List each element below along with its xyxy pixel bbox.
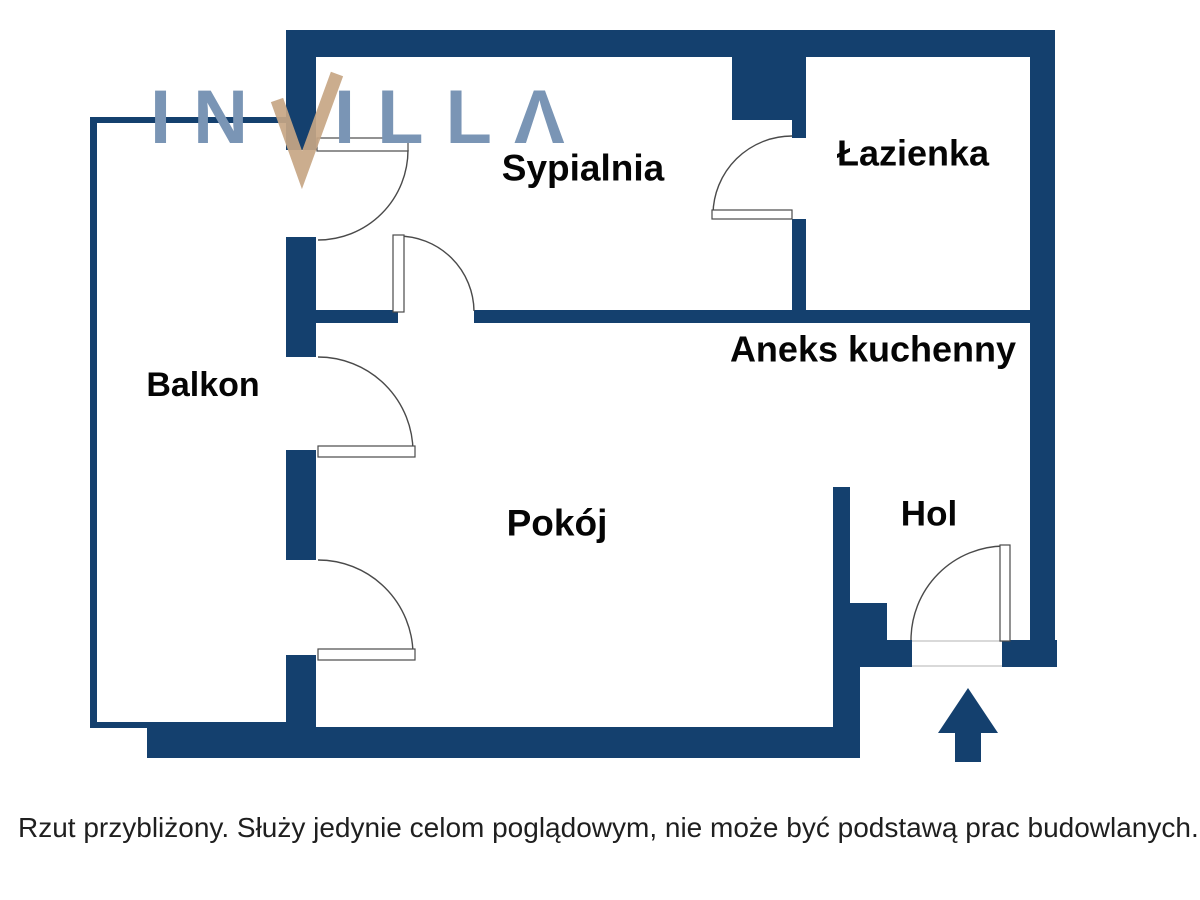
room-label-balkon: Balkon <box>146 366 259 404</box>
room-label-sypialnia: Sypialnia <box>502 148 665 189</box>
floorplan-page: SypialniaŁazienkaAneks kuchennyBalkonPok… <box>0 0 1200 900</box>
floorplan-drawing: SypialniaŁazienkaAneks kuchennyBalkonPok… <box>0 0 1200 900</box>
pokoj-balcony-door-2-leaf <box>318 649 415 660</box>
bath-wall-upper <box>792 120 806 138</box>
left-wall-upper <box>286 30 316 150</box>
divider-wall-left <box>316 310 398 323</box>
entrance-door-arc <box>911 546 1004 640</box>
entrance-arrow-icon <box>938 688 998 762</box>
pokoj-balcony-door-1-leaf <box>318 446 415 457</box>
left-wall-mid-1 <box>286 237 316 357</box>
sypialnia-interior-door-leaf <box>393 235 404 312</box>
room-label-hol: Hol <box>901 495 957 534</box>
sypialnia-balcony-door-leaf <box>317 138 408 151</box>
room-label-pokoj: Pokój <box>507 503 608 544</box>
left-wall-mid-2 <box>286 450 316 560</box>
entrance-threshold-top <box>912 640 1002 642</box>
bathroom-door-leaf <box>712 210 792 219</box>
balcony-wall-bottom <box>90 722 286 728</box>
hol-step <box>833 603 887 640</box>
room-label-aneks-kuchenny: Aneks kuchenny <box>730 329 1016 370</box>
divider-wall-right <box>474 310 1030 323</box>
entrance-threshold-bottom <box>912 665 1002 667</box>
room-label-lazienka: Łazienka <box>837 133 990 174</box>
bottom-wall <box>147 727 860 758</box>
top-wall <box>286 30 1055 57</box>
sypialnia-interior-door-arc <box>398 236 474 311</box>
bath-entry-pier <box>732 57 806 120</box>
disclaimer-text: Rzut przybliżony. Służy jedynie celom po… <box>18 812 1188 844</box>
sypialnia-balcony-door-arc <box>318 150 408 240</box>
right-wall <box>1030 30 1055 667</box>
pokoj-balcony-door-1-arc <box>318 357 413 452</box>
entrance-door-leaf <box>1000 545 1010 641</box>
hol-partition <box>833 487 850 607</box>
bath-wall-lower <box>792 219 806 322</box>
entry-wall-left <box>860 640 912 667</box>
balcony-wall-top <box>90 117 286 123</box>
balcony-wall-left <box>90 117 97 728</box>
pokoj-balcony-door-2-arc <box>318 560 413 654</box>
entry-wall-right <box>1002 640 1057 667</box>
bathroom-door-arc <box>713 136 792 214</box>
